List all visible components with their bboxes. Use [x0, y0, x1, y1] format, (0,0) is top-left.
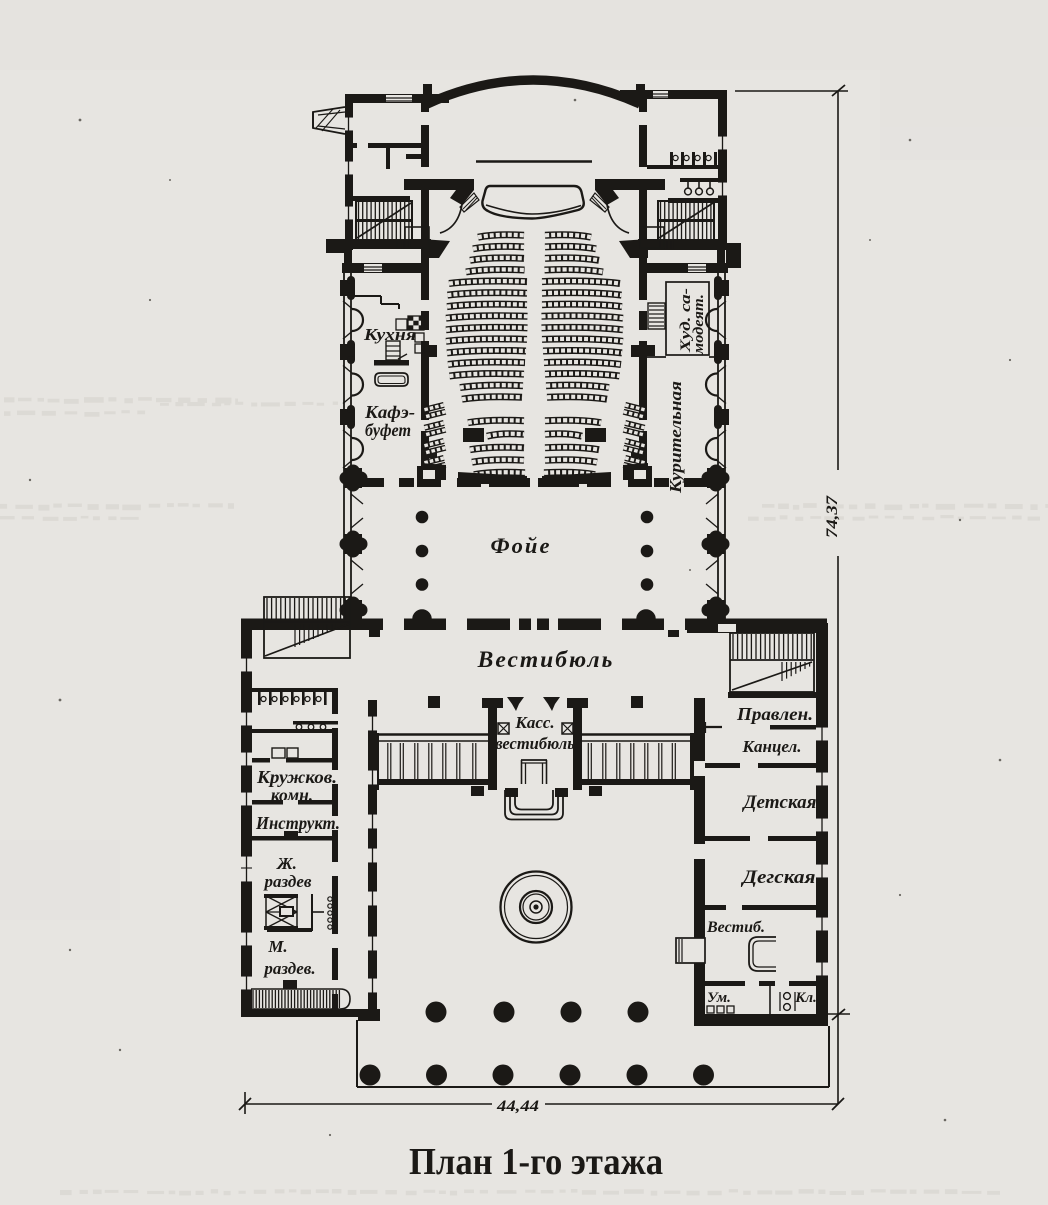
svg-text:Канцел.: Канцел.: [741, 737, 801, 756]
svg-text:раздев.: раздев.: [262, 959, 315, 978]
svg-text:Кружков.: Кружков.: [256, 767, 337, 787]
svg-text:Правлен.: Правлен.: [736, 704, 813, 724]
svg-text:буфет: буфет: [365, 420, 411, 440]
svg-text:Кухня: Кухня: [363, 325, 416, 344]
svg-text:Кл.: Кл.: [794, 990, 817, 1006]
svg-text:Касс.: Касс.: [514, 713, 554, 732]
svg-text:Инструкт.: Инструкт.: [255, 813, 340, 833]
svg-text:Ж.: Ж.: [276, 854, 297, 873]
svg-text:М.: М.: [267, 937, 287, 956]
svg-text:модеят.: модеят.: [691, 294, 707, 355]
svg-text:74,37: 74,37: [824, 495, 841, 538]
svg-text:Детская: Детская: [741, 793, 816, 813]
svg-text:44,44: 44,44: [496, 1098, 539, 1115]
svg-text:Курительная: Курительная: [666, 381, 685, 494]
svg-text:вестибюль: вестибюль: [495, 734, 575, 753]
svg-text:Ум.: Ум.: [707, 990, 731, 1006]
svg-text:Вестибюль: Вестибюль: [477, 647, 615, 673]
svg-text:раздев: раздев: [263, 872, 312, 891]
svg-text:План 1-го этажа: План 1-го этажа: [409, 1141, 663, 1183]
svg-text:Вестиб.: Вестиб.: [706, 919, 765, 936]
svg-text:Фойе: Фойе: [491, 533, 552, 558]
svg-text:Кафэ-: Кафэ-: [364, 402, 415, 422]
svg-text:Дегская: Дегская: [740, 868, 815, 888]
